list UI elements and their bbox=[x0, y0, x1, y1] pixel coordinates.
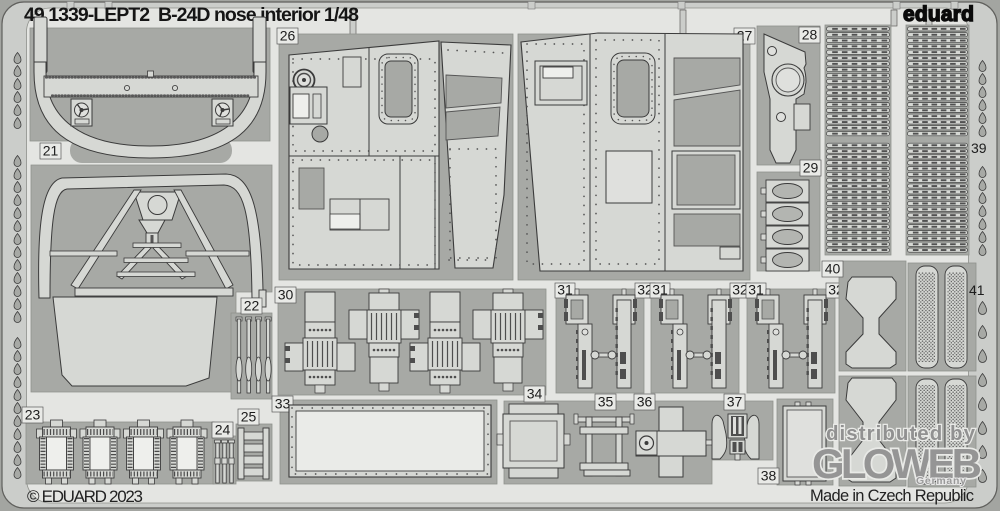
svg-text:24: 24 bbox=[215, 422, 231, 438]
svg-text:35: 35 bbox=[598, 394, 614, 410]
svg-text:© EDUARD 2023: © EDUARD 2023 bbox=[27, 487, 143, 506]
svg-text:37: 37 bbox=[727, 394, 743, 410]
svg-text:25: 25 bbox=[241, 409, 257, 425]
svg-text:34: 34 bbox=[527, 386, 543, 402]
svg-text:38: 38 bbox=[761, 468, 777, 484]
svg-text:49 1339-LEPT2 B-24D nose inte: 49 1339-LEPT2 B-24D nose interior 1/48 bbox=[24, 4, 359, 26]
svg-text:33: 33 bbox=[275, 396, 291, 412]
svg-text:36: 36 bbox=[637, 394, 653, 410]
svg-text:23: 23 bbox=[25, 407, 41, 423]
svg-text:32: 32 bbox=[732, 282, 748, 298]
svg-text:21: 21 bbox=[43, 143, 59, 159]
svg-text:40: 40 bbox=[825, 261, 841, 277]
svg-text:39: 39 bbox=[971, 140, 987, 156]
svg-text:26: 26 bbox=[280, 28, 296, 44]
svg-text:22: 22 bbox=[244, 298, 260, 314]
svg-text:Made in Czech Republic: Made in Czech Republic bbox=[810, 487, 974, 505]
svg-text:Germany: Germany bbox=[916, 475, 966, 487]
svg-text:41: 41 bbox=[969, 282, 985, 298]
svg-text:eduard: eduard bbox=[903, 3, 974, 26]
svg-text:30: 30 bbox=[278, 287, 294, 303]
svg-text:28: 28 bbox=[802, 27, 818, 43]
svg-text:29: 29 bbox=[803, 160, 819, 176]
